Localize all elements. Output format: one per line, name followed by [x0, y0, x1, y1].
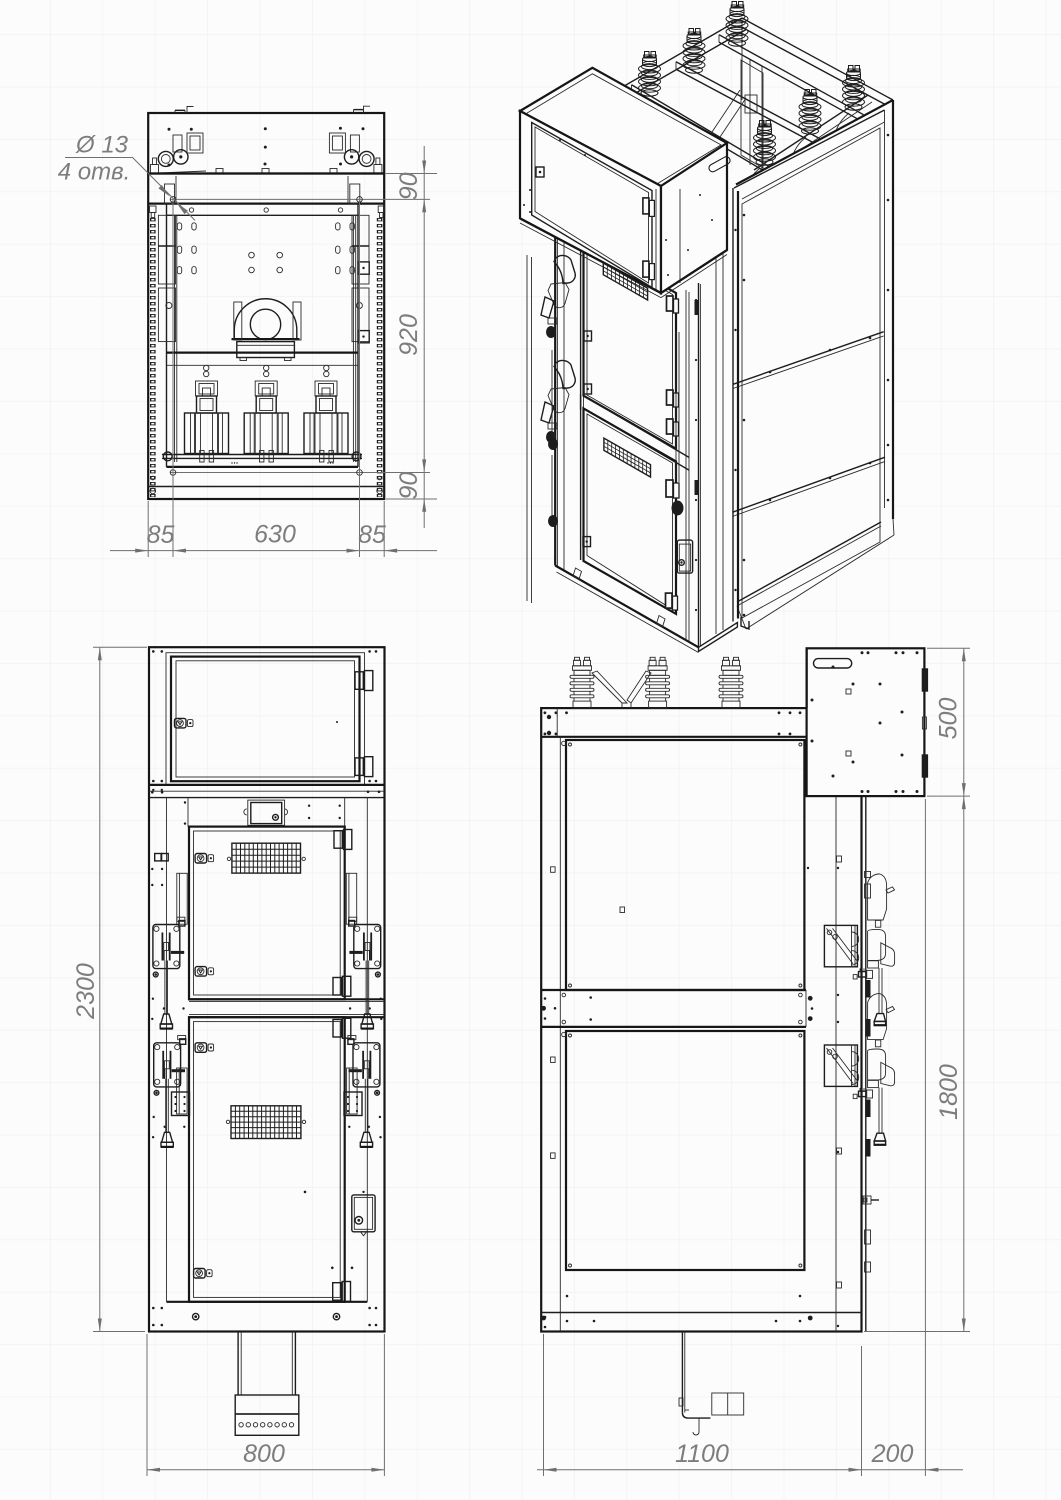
svg-text:Ø 13: Ø 13 [75, 132, 129, 159]
svg-text:920: 920 [395, 314, 423, 356]
svg-text:2300: 2300 [72, 963, 100, 1020]
svg-text:630: 630 [254, 521, 296, 549]
svg-text:800: 800 [243, 1440, 285, 1468]
svg-text:4 отв.: 4 отв. [58, 159, 131, 186]
svg-text:500: 500 [935, 698, 963, 740]
svg-text:85: 85 [147, 521, 175, 549]
svg-text:90: 90 [395, 472, 423, 500]
svg-text:85: 85 [358, 521, 386, 549]
svg-text:1100: 1100 [675, 1440, 729, 1468]
svg-text:90: 90 [395, 172, 423, 200]
svg-text:1800: 1800 [935, 1064, 963, 1120]
svg-text:200: 200 [871, 1440, 914, 1468]
